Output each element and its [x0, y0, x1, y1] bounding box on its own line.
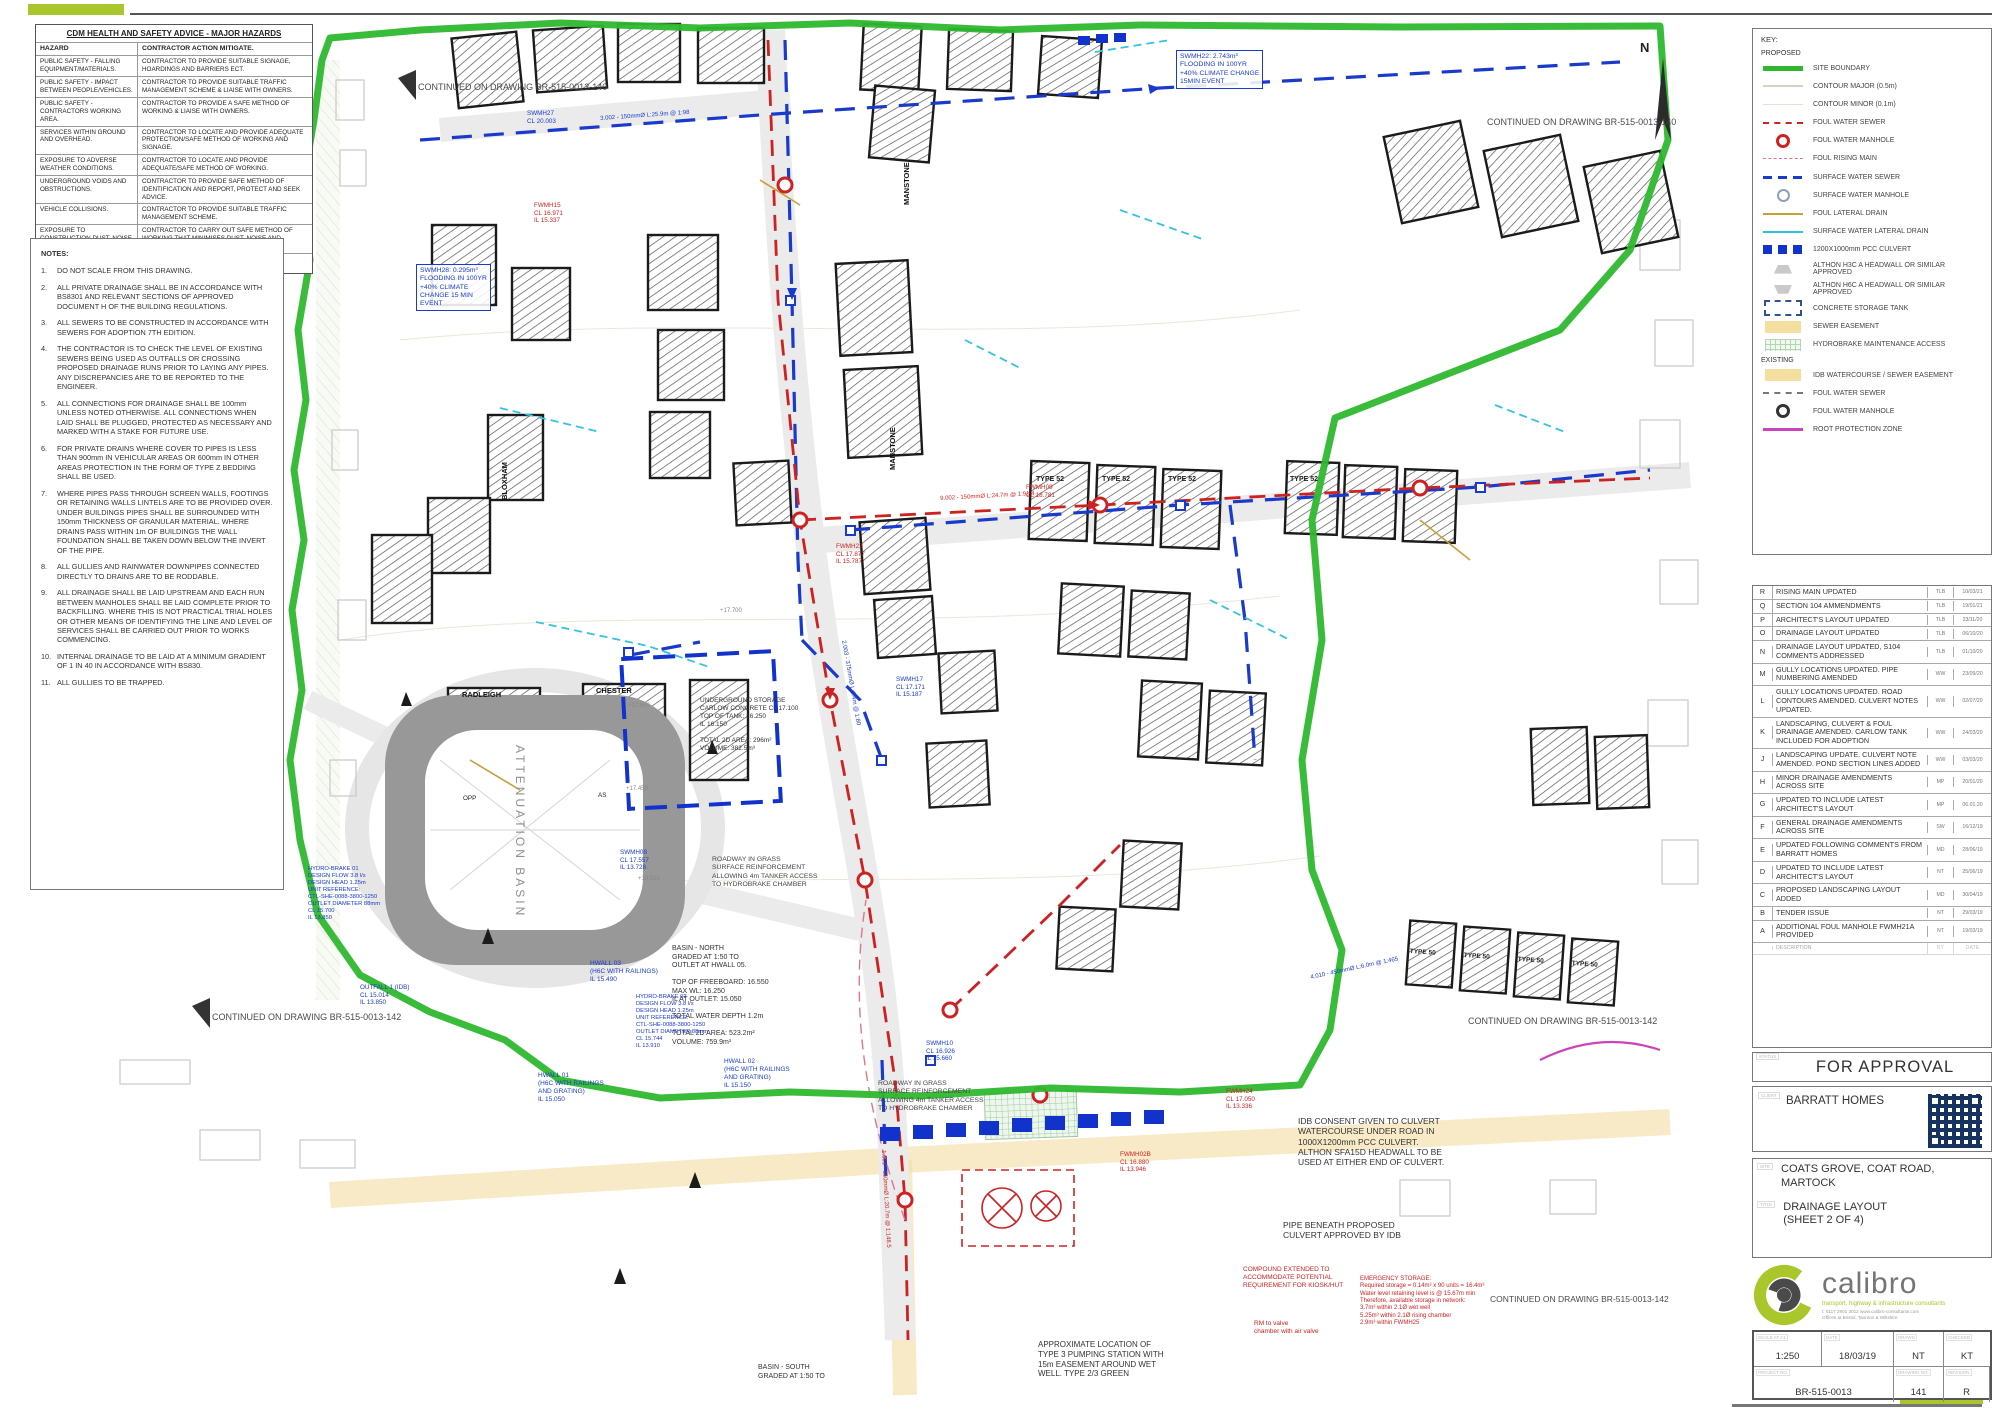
- revision-by: TLB: [1927, 647, 1953, 657]
- revision-row: D UPDATED TO INCLUDE LATEST ARCHITECT'S …: [1753, 862, 1991, 885]
- hazards-col-hazard: HAZARD: [36, 43, 138, 55]
- plan-annotation: ATTENUATION BASIN: [512, 745, 527, 918]
- plan-annotation: SWMH27 CL 20.003: [527, 110, 556, 125]
- note-text: ALL CONNECTIONS FOR DRAINAGE SHALL BE 10…: [57, 399, 273, 437]
- revision-description: PROPOSED LANDSCAPING LAYOUT ADDED: [1773, 884, 1927, 906]
- plan-annotation: ROADWAY IN GRASS SURFACE REINFORCEMENT A…: [878, 1080, 984, 1113]
- qr-code: [1928, 1094, 1982, 1148]
- key-existing-items: IDB WATERCOURSE / SEWER EASEMENT FOUL WA…: [1761, 369, 1983, 436]
- key-item: CONTOUR MAJOR (0.5m): [1761, 80, 1983, 92]
- legend-swatch-icon: [1761, 339, 1805, 351]
- sheet-frame-rule: [130, 13, 1992, 15]
- legend-swatch-icon: [1761, 117, 1805, 129]
- plan-annotation: BASIN - NORTH GRADED AT 1:50 TO OUTLET A…: [672, 945, 802, 1047]
- action-cell: CONTRACTOR TO LOCATE AND PROVIDE ADEQUAT…: [138, 127, 312, 155]
- revision-description: GULLY LOCATIONS UPDATED. PIPE NUMBERING …: [1773, 664, 1927, 686]
- hazard-cell: PUBLIC SAFETY - CONTRACTORS WORKING AREA…: [36, 98, 138, 126]
- legend-swatch-icon: [1761, 321, 1805, 333]
- revision-date: 19/01/21: [1953, 601, 1991, 611]
- key-item: FOUL WATER SEWER: [1761, 387, 1983, 399]
- revision-by: MD: [1927, 845, 1953, 855]
- revision-date: 03/03/20: [1953, 755, 1991, 765]
- key-item: SURFACE WATER LATERAL DRAIN: [1761, 226, 1983, 238]
- plan-annotation: SWMH22: 2.743m³ FLOODING IN 100YR +40% C…: [1176, 50, 1263, 89]
- revision-date: 23/11/20: [1953, 615, 1991, 625]
- note-text: ALL SEWERS TO BE CONSTRUCTED IN ACCORDAN…: [57, 318, 273, 337]
- plan-annotation: +17.700: [720, 608, 742, 615]
- drawing-title: DRAINAGE LAYOUT (SHEET 2 OF 4): [1783, 1201, 1887, 1229]
- key-item-label: SURFACE WATER MANHOLE: [1813, 192, 1909, 199]
- scale-label: SCALE AT A1: [1756, 1334, 1788, 1341]
- revision-cell: REVISION R: [1944, 1367, 1990, 1402]
- plan-annotation: PIPE BENEATH PROPOSED CULVERT APPROVED B…: [1283, 1220, 1401, 1241]
- plan-annotation: SWMH17 CL 17.171 IL 15.187: [896, 676, 925, 699]
- note-number: 7.: [41, 489, 57, 555]
- revision-date: 30/04/19: [1953, 890, 1991, 900]
- plan-annotation: RM to valve chamber with air valve: [1254, 1320, 1319, 1336]
- revision-letter: M: [1753, 668, 1773, 681]
- note-text: ALL PRIVATE DRAINAGE SHALL BE IN ACCORDA…: [57, 283, 273, 311]
- revision-row: C PROPOSED LANDSCAPING LAYOUT ADDED MD 3…: [1753, 884, 1991, 907]
- client-field-label: CLIENT: [1758, 1092, 1780, 1099]
- legend-swatch-icon: [1761, 283, 1805, 295]
- revision-date: 29/03/19: [1953, 908, 1991, 918]
- revision-letter: G: [1753, 798, 1773, 811]
- key-item: ALTHON H3C A HEADWALL OR SIMILAR APPROVE…: [1761, 262, 1983, 276]
- hazard-row: PUBLIC SAFETY - FALLING EQUIPMENT/MATERI…: [36, 55, 312, 76]
- revision-description: ADDITIONAL FOUL MANHOLE FWMH21A PROVIDED: [1773, 921, 1927, 943]
- revision-by: NT: [1927, 908, 1953, 918]
- plan-annotation: HWALL 03 (H6C WITH RAILINGS) IL 15.490: [590, 960, 658, 984]
- site-field-label: SITE: [1757, 1163, 1773, 1170]
- revision-letter: D: [1753, 866, 1773, 879]
- drawing-sheet: CONTINUED ON DRAWING BR-515-0013-140CONT…: [0, 0, 2000, 1413]
- key-legend: KEY: PROPOSED SITE BOUNDARY CONTOUR MAJO…: [1752, 28, 1992, 555]
- key-item: SITE BOUNDARY: [1761, 62, 1983, 74]
- status-field-label: STATUS: [1756, 1053, 1779, 1060]
- revision-description: RISING MAIN UPDATED: [1773, 586, 1927, 599]
- hazard-row: PUBLIC SAFETY - CONTRACTORS WORKING AREA…: [36, 97, 312, 126]
- legend-swatch-icon: [1761, 135, 1805, 147]
- north-label: N: [1640, 40, 1649, 56]
- date-cell: DATE 18/03/19: [1822, 1332, 1894, 1367]
- legend-swatch-icon: [1761, 387, 1805, 399]
- key-title: KEY:: [1761, 35, 1983, 44]
- plan-annotation: TYPE 50: [1463, 952, 1490, 962]
- revision-by: WW: [1927, 728, 1953, 738]
- plan-annotation: COMPOUND EXTENDED TO ACCOMMODATE POTENTI…: [1243, 1266, 1343, 1290]
- revision-row: E UPDATED FOLLOWING COMMENTS FROM BARRAT…: [1753, 839, 1991, 862]
- surface-water-sewers: [420, 40, 1650, 1180]
- key-item-label: ALTHON H6C A HEADWALL OR SIMILAR APPROVE…: [1813, 282, 1983, 296]
- key-item: FOUL RISING MAIN: [1761, 153, 1983, 165]
- plan-annotation: SWMH10 CL 16.926 IL 15.660: [926, 1040, 955, 1063]
- hazard-cell: SERVICES WITHIN GROUND AND OVERHEAD.: [36, 127, 138, 155]
- revision-row: F GENERAL DRAINAGE AMENDMENTS ACROSS SIT…: [1753, 817, 1991, 840]
- hazard-row: SERVICES WITHIN GROUND AND OVERHEAD. CON…: [36, 126, 312, 155]
- revision-letter: O: [1753, 627, 1773, 640]
- revision-description: UPDATED TO INCLUDE LATEST ARCHITECT'S LA…: [1773, 794, 1927, 816]
- revision-letter: K: [1753, 726, 1773, 739]
- proposed-buildings: [372, 24, 1678, 1006]
- revision-table: R RISING MAIN UPDATED TLB 10/03/21 Q SEC…: [1752, 585, 1992, 1048]
- key-item: ROOT PROTECTION ZONE: [1761, 424, 1983, 436]
- revision-date: 25/06/19: [1953, 867, 1991, 877]
- legend-swatch-icon: [1761, 369, 1805, 381]
- revision-by: SW: [1927, 822, 1953, 832]
- key-item: FOUL LATERAL DRAIN: [1761, 208, 1983, 220]
- flow-arrows: [787, 84, 1160, 700]
- plan-annotation: HYDRO-BRAKE 02 DESIGN FLOW 3.8 l/s DESIG…: [636, 994, 708, 1051]
- action-cell: CONTRACTOR TO PROVIDE SUITABLE TRAFFIC M…: [138, 204, 312, 224]
- date-value: 18/03/19: [1839, 1351, 1876, 1362]
- revision-date: 06.01.20: [1953, 800, 1991, 810]
- hazards-col-action: CONTRACTOR ACTION MITIGATE.: [138, 43, 312, 55]
- legend-swatch-icon: [1761, 189, 1805, 201]
- note-number: 5.: [41, 399, 57, 437]
- note-text: FOR PRIVATE DRAINS WHERE COVER TO PIPES …: [57, 444, 273, 482]
- key-item-label: ROOT PROTECTION ZONE: [1813, 426, 1902, 433]
- hazard-row: UNDERGROUND VOIDS AND OBSTRUCTIONS. CONT…: [36, 175, 312, 204]
- plan-annotation: CHESTER: [596, 686, 632, 695]
- basin-loop-road: [357, 680, 713, 976]
- revision-date: 06/10/20: [1953, 629, 1991, 639]
- revision-head-rev: [1753, 946, 1773, 950]
- note-number: 11.: [41, 678, 57, 687]
- key-existing-label: EXISTING: [1761, 357, 1983, 364]
- key-item-label: FOUL WATER SEWER: [1813, 119, 1885, 126]
- revision-letter: L: [1753, 695, 1773, 708]
- action-cell: CONTRACTOR TO PROVIDE SAFE METHOD OF IDE…: [138, 176, 312, 204]
- drawing-no-label: DRAWING NO.: [1896, 1369, 1931, 1376]
- legend-swatch-icon: [1761, 62, 1805, 74]
- revision-date: 02/07/20: [1953, 696, 1991, 706]
- revision-row: B TENDER ISSUE NT 29/03/19: [1753, 907, 1991, 921]
- plan-annotation: FWMH02B CL 16.880 IL 13.946: [1120, 1151, 1151, 1174]
- revision-row: M GULLY LOCATIONS UPDATED. PIPE NUMBERIN…: [1753, 664, 1991, 687]
- note-number: 10.: [41, 652, 57, 671]
- plan-annotation: HWALL 01 (H6C WITH RAILINGS AND GRATING)…: [538, 1072, 604, 1104]
- key-item: SEWER EASEMENT: [1761, 321, 1983, 333]
- sheet-frame-rule-bottom: [1732, 1404, 1982, 1407]
- revision-letter: A: [1753, 925, 1773, 938]
- note-text: WHERE PIPES PASS THROUGH SCREEN WALLS, F…: [57, 489, 273, 555]
- revision-header-row: DESCRIPTION BY DATE: [1753, 943, 1991, 954]
- calibro-logo-icon: [1752, 1263, 1816, 1327]
- legend-swatch-icon: [1761, 171, 1805, 183]
- key-item: CONTOUR MINOR (0.1m): [1761, 98, 1983, 110]
- logo-contact: t: 0117 2901 3012 www.calibro-consultant…: [1822, 1309, 1945, 1321]
- underground-storage-tank: [621, 651, 781, 809]
- legend-swatch-icon: [1761, 226, 1805, 238]
- plan-annotation: FWMH15 CL 16.971 IL 15.337: [534, 202, 563, 225]
- site-boundary: [290, 23, 1668, 1098]
- key-item-label: FOUL WATER MANHOLE: [1813, 408, 1894, 415]
- revision-by: WW: [1927, 669, 1953, 679]
- hazard-row: VEHICLE COLLISIONS. CONTRACTOR TO PROVID…: [36, 203, 312, 224]
- hazards-header-row: HAZARD CONTRACTOR ACTION MITIGATE.: [36, 42, 312, 55]
- revision-letter: F: [1753, 821, 1773, 834]
- revision-head-by: BY: [1927, 943, 1953, 953]
- drawn-cell: DRAWN NT: [1894, 1332, 1944, 1367]
- revision-rows: R RISING MAIN UPDATED TLB 10/03/21 Q SEC…: [1753, 586, 1991, 943]
- revision-row: J LANDSCAPING UPDATE. CULVERT NOTE AMEND…: [1753, 749, 1991, 772]
- key-item: ALTHON H6C A HEADWALL OR SIMILAR APPROVE…: [1761, 282, 1983, 296]
- notes-panel: NOTES: 1. DO NOT SCALE FROM THIS DRAWING…: [30, 238, 284, 890]
- revision-by: TLB: [1927, 601, 1953, 611]
- hazard-row: PUBLIC SAFETY - IMPACT BETWEEN PEOPLE/VE…: [36, 76, 312, 97]
- drawn-label: DRAWN: [1896, 1334, 1917, 1341]
- client-name: BARRATT HOMES: [1786, 1095, 1928, 1146]
- status-value: FOR APPROVAL: [1779, 1058, 1991, 1077]
- plan-annotation: CONTINUED ON DRAWING BR-515-0013-142: [212, 1012, 401, 1023]
- drawing-no-value: 141: [1911, 1387, 1927, 1398]
- key-item: IDB WATERCOURSE / SEWER EASEMENT: [1761, 369, 1983, 381]
- action-cell: CONTRACTOR TO PROVIDE SUITABLE SIGNAGE, …: [138, 56, 312, 76]
- plan-annotation: MANSTONE: [888, 427, 897, 470]
- plan-annotation: RADLEIGH: [462, 690, 501, 699]
- key-item-label: FOUL WATER MANHOLE: [1813, 137, 1894, 144]
- note-text: THE CONTRACTOR IS TO CHECK THE LEVEL OF …: [57, 344, 273, 391]
- foul-lateral-drains: [470, 180, 1470, 790]
- legend-swatch-icon: [1761, 302, 1805, 314]
- hazard-cell: EXPOSURE TO ADVERSE WEATHER CONDITIONS.: [36, 155, 138, 175]
- roads: [308, 30, 1690, 1340]
- revision-description: TENDER ISSUE: [1773, 907, 1927, 920]
- note-item: 2. ALL PRIVATE DRAINAGE SHALL BE IN ACCO…: [41, 283, 273, 311]
- plan-annotation: +17.450: [626, 786, 648, 793]
- note-text: ALL DRAINAGE SHALL BE LAID UPSTREAM AND …: [57, 588, 273, 645]
- section-markers: [401, 692, 718, 1284]
- note-item: 6. FOR PRIVATE DRAINS WHERE COVER TO PIP…: [41, 444, 273, 482]
- revision-by: NT: [1927, 926, 1953, 936]
- revision-date: 23/09/20: [1953, 669, 1991, 679]
- plan-annotation: SWMH08 CL 17.557 IL 13.728: [620, 849, 649, 872]
- cdm-hazards-table: CDM HEALTH AND SAFETY ADVICE - MAJOR HAZ…: [35, 24, 313, 274]
- revision-by: WW: [1927, 755, 1953, 765]
- plan-annotation: TYPE 52: [1168, 476, 1196, 485]
- revision-date: 28/06/19: [1953, 845, 1991, 855]
- key-item: HYDROBRAKE MAINTENANCE ACCESS: [1761, 339, 1983, 351]
- note-text: INTERNAL DRAINAGE TO BE LAID AT A MINIMU…: [57, 652, 273, 671]
- plan-annotation: TYPE 50: [1571, 960, 1598, 970]
- legend-swatch-icon: [1761, 405, 1805, 417]
- revision-by: TLB: [1927, 587, 1953, 597]
- revision-date: 19/03/19: [1953, 926, 1991, 936]
- note-number: 4.: [41, 344, 57, 391]
- revision-row: G UPDATED TO INCLUDE LATEST ARCHITECT'S …: [1753, 794, 1991, 817]
- revision-by: WW: [1927, 696, 1953, 706]
- key-item: FOUL WATER MANHOLE: [1761, 135, 1983, 147]
- root-protection-zone: [1540, 1042, 1660, 1060]
- action-cell: CONTRACTOR TO PROVIDE A SAFE METHOD OF W…: [138, 98, 312, 126]
- revision-row: A ADDITIONAL FOUL MANHOLE FWMH21A PROVID…: [1753, 921, 1991, 944]
- key-item-label: ALTHON H3C A HEADWALL OR SIMILAR APPROVE…: [1813, 262, 1983, 276]
- note-item: 8. ALL GULLIES AND RAINWATER DOWNPIPES C…: [41, 562, 273, 581]
- foul-rising-main: [859, 900, 905, 1220]
- plan-annotation: CONTINUED ON DRAWING BR-515-0013-142: [1490, 1294, 1669, 1304]
- surface-water-manholes: [624, 296, 1485, 1065]
- plan-annotation: 2.003 - 375mmØ L:9.4m @ 1:80: [839, 640, 861, 726]
- revision-letter: Q: [1753, 600, 1773, 613]
- north-arrow-icon: [1655, 58, 1671, 140]
- scale-cell: SCALE AT A1 1:250: [1754, 1332, 1822, 1367]
- revision-description: UPDATED TO INCLUDE LATEST ARCHITECT'S LA…: [1773, 862, 1927, 884]
- hazard-cell: PUBLIC SAFETY - FALLING EQUIPMENT/MATERI…: [36, 56, 138, 76]
- revision-by: MP: [1927, 777, 1953, 787]
- action-cell: CONTRACTOR TO LOCATE AND PROVIDE ADEQUAT…: [138, 155, 312, 175]
- key-item-label: SURFACE WATER LATERAL DRAIN: [1813, 228, 1929, 235]
- pcc-culvert: [880, 33, 1164, 1141]
- key-item-label: SEWER EASEMENT: [1813, 323, 1879, 330]
- plan-annotation: OPP: [463, 795, 476, 803]
- revision-description: LANDSCAPING UPDATE. CULVERT NOTE AMENDED…: [1773, 749, 1927, 771]
- drawing-no-cell: DRAWING NO. 141: [1894, 1367, 1944, 1402]
- plan-annotation: FWMH22 CL 17.877 IL 15.787: [836, 543, 865, 566]
- notes-list: 1. DO NOT SCALE FROM THIS DRAWING. 2. AL…: [41, 266, 273, 687]
- note-item: 10. INTERNAL DRAINAGE TO BE LAID AT A MI…: [41, 652, 273, 671]
- checked-value: KT: [1961, 1351, 1973, 1362]
- plan-annotation: AS: [598, 792, 606, 800]
- checked-label: CHECKED: [1946, 1334, 1972, 1341]
- plan-annotation: EMERGENCY STORAGE: Required storage = 0.…: [1360, 1276, 1525, 1327]
- key-item-label: SITE BOUNDARY: [1813, 65, 1870, 72]
- legend-swatch-icon: [1761, 424, 1805, 436]
- key-item-label: SURFACE WATER SEWER: [1813, 174, 1900, 181]
- revision-letter: H: [1753, 776, 1773, 789]
- date-label: DATE: [1824, 1334, 1840, 1341]
- legend-swatch-icon: [1761, 80, 1805, 92]
- key-proposed-label: PROPOSED: [1761, 50, 1983, 57]
- legend-swatch-icon: [1761, 153, 1805, 165]
- revision-letter: B: [1753, 907, 1773, 920]
- plan-annotation: TYPE 52: [1036, 476, 1064, 485]
- revision-description: LANDSCAPING, CULVERT & FOUL DRAINAGE AME…: [1773, 718, 1927, 748]
- note-number: 8.: [41, 562, 57, 581]
- hazards-rows: PUBLIC SAFETY - FALLING EQUIPMENT/MATERI…: [36, 55, 312, 252]
- key-item-label: FOUL RISING MAIN: [1813, 155, 1877, 162]
- revision-date: 20/01/20: [1953, 777, 1991, 787]
- key-item-label: IDB WATERCOURSE / SEWER EASEMENT: [1813, 372, 1953, 379]
- plan-annotation: 3.002 - 150mmØ L:25.9m @ 1:98: [600, 110, 690, 124]
- revision-date: 16/12/19: [1953, 822, 1991, 832]
- logo-wordmark: calibro: [1822, 1269, 1945, 1299]
- status-box: STATUS FOR APPROVAL: [1752, 1052, 1992, 1082]
- plan-annotation: TYPE 52: [1290, 476, 1318, 485]
- key-item-label: FOUL LATERAL DRAIN: [1813, 210, 1887, 217]
- project-no-value: BR-515-0013: [1795, 1387, 1852, 1398]
- revision-letter: R: [1753, 586, 1773, 599]
- plan-annotation: TYPE 50: [1409, 948, 1436, 958]
- plan-annotation: +17.650: [628, 703, 650, 710]
- revision-letter: J: [1753, 753, 1773, 766]
- note-text: ALL GULLIES TO BE TRAPPED.: [57, 678, 273, 687]
- key-item-label: 1200X1000mm PCC CULVERT: [1813, 246, 1911, 253]
- foul-manholes: [778, 178, 1427, 1207]
- revision-row: R RISING MAIN UPDATED TLB 10/03/21: [1753, 586, 1991, 600]
- plan-annotation: IDB CONSENT GIVEN TO CULVERT WATERCOURSE…: [1298, 1116, 1444, 1168]
- action-cell: CONTRACTOR TO PROVIDE SUITABLE TRAFFIC M…: [138, 77, 312, 97]
- revision-row: L GULLY LOCATIONS UPDATED. ROAD CONTOURS…: [1753, 686, 1991, 717]
- plan-annotation: BASIN - SOUTH GRADED AT 1:50 TO: [758, 1364, 825, 1381]
- key-item-label: CONTOUR MINOR (0.1m): [1813, 101, 1896, 108]
- key-item-label: CONCRETE STORAGE TANK: [1813, 305, 1908, 312]
- revision-head-desc: DESCRIPTION: [1773, 943, 1927, 953]
- plan-annotation: HYDRO-BRAKE 01 DESIGN FLOW 3.8 l/s DESIG…: [308, 866, 380, 923]
- hazard-row: EXPOSURE TO ADVERSE WEATHER CONDITIONS. …: [36, 154, 312, 175]
- plan-annotation: HWALL 02 (H6C WITH RAILINGS AND GRATING)…: [724, 1058, 790, 1090]
- revision-head-date: DATE: [1953, 943, 1991, 953]
- revision-row: Q SECTION 104 AMMENDMENTS TLB 19/01/21: [1753, 600, 1991, 614]
- key-item: SURFACE WATER MANHOLE: [1761, 189, 1983, 201]
- revision-row: O DRAINAGE LAYOUT UPDATED TLB 06/10/20: [1753, 627, 1991, 641]
- revision-description: ARCHITECT'S LAYOUT UPDATED: [1773, 614, 1927, 627]
- site-name: COATS GROVE, COAT ROAD, MARTOCK: [1781, 1163, 1934, 1191]
- note-number: 6.: [41, 444, 57, 482]
- key-item-label: FOUL WATER SEWER: [1813, 390, 1885, 397]
- key-item: 1200X1000mm PCC CULVERT: [1761, 244, 1983, 256]
- note-number: 3.: [41, 318, 57, 337]
- note-number: 2.: [41, 283, 57, 311]
- revision-date: 10/03/21: [1953, 587, 1991, 597]
- calibro-logo-block: calibro transport, highway & infrastruct…: [1752, 1262, 1992, 1328]
- project-no-label: PROJECT NO.: [1756, 1369, 1790, 1376]
- key-item: FOUL WATER SEWER: [1761, 117, 1983, 129]
- sw-lateral-drains: [500, 40, 1565, 668]
- plan-annotation: ROADWAY IN GRASS SURFACE REINFORCEMENT A…: [712, 856, 818, 889]
- sheet-corner-accent-top-left: [28, 4, 124, 15]
- plan-annotation: CONTINUED ON DRAWING BR-515-0013-142: [1468, 1016, 1657, 1027]
- plan-annotation: SWMH28: 0.295m³ FLOODING IN 100YR +40% C…: [416, 264, 491, 311]
- note-item: 11. ALL GULLIES TO BE TRAPPED.: [41, 678, 273, 687]
- revision-letter: C: [1753, 889, 1773, 902]
- revision-date: 01/10/20: [1953, 647, 1991, 657]
- plan-annotation: MANSTONE: [902, 162, 911, 205]
- plan-annotation: FWMH24 CL 17.050 IL 13.336: [1226, 1088, 1255, 1111]
- revision-row: H MINOR DRAINAGE AMENDMENTS ACROSS SITE …: [1753, 772, 1991, 795]
- hazards-title: CDM HEALTH AND SAFETY ADVICE - MAJOR HAZ…: [36, 25, 312, 42]
- checked-cell: CHECKED KT: [1944, 1332, 1990, 1367]
- attenuation-basin: [385, 695, 685, 965]
- hazard-cell: UNDERGROUND VOIDS AND OBSTRUCTIONS.: [36, 176, 138, 204]
- note-item: 7. WHERE PIPES PASS THROUGH SCREEN WALLS…: [41, 489, 273, 555]
- plan-annotation: 4.010 - 450mmØ L:6.0m @ 1:465: [1310, 956, 1399, 982]
- revision-letter: N: [1753, 646, 1773, 659]
- revision-date: 24/03/20: [1953, 728, 1991, 738]
- plan-annotation: OUTFALL 1 (IDB) CL 15.014 IL 13.850: [360, 984, 409, 1007]
- revision-row: N DRAINAGE LAYOUT UPDATED, S104 COMMENTS…: [1753, 641, 1991, 664]
- revision-label: REVISION: [1946, 1369, 1972, 1376]
- revision-description: DRAINAGE LAYOUT UPDATED: [1773, 627, 1927, 640]
- revision-row: K LANDSCAPING, CULVERT & FOUL DRAINAGE A…: [1753, 718, 1991, 749]
- hazard-cell: PUBLIC SAFETY - IMPACT BETWEEN PEOPLE/VE…: [36, 77, 138, 97]
- revision-description: GENERAL DRAINAGE AMENDMENTS ACROSS SITE: [1773, 817, 1927, 839]
- hydrobrake-access-pad: [984, 1090, 1078, 1139]
- plan-annotation: +18.526: [638, 876, 660, 883]
- revision-description: MINOR DRAINAGE AMENDMENTS ACROSS SITE: [1773, 772, 1927, 794]
- legend-swatch-icon: [1761, 98, 1805, 110]
- logo-tagline: transport, highway & infrastructure cons…: [1822, 1301, 1945, 1307]
- revision-by: TLB: [1927, 629, 1953, 639]
- key-item: SURFACE WATER SEWER: [1761, 171, 1983, 183]
- legend-swatch-icon: [1761, 263, 1805, 275]
- note-item: 5. ALL CONNECTIONS FOR DRAINAGE SHALL BE…: [41, 399, 273, 437]
- plan-annotation: FWMH09 CL 18.781: [1026, 484, 1055, 499]
- sewer-easement-band: [330, 1122, 1670, 1395]
- hedgerow-strip: [316, 60, 340, 1000]
- revision-description: DRAINAGE LAYOUT UPDATED, S104 COMMENTS A…: [1773, 641, 1927, 663]
- titleblock-meta-table: SCALE AT A1 1:250 DATE 18/03/19 DRAWN NT…: [1752, 1330, 1992, 1400]
